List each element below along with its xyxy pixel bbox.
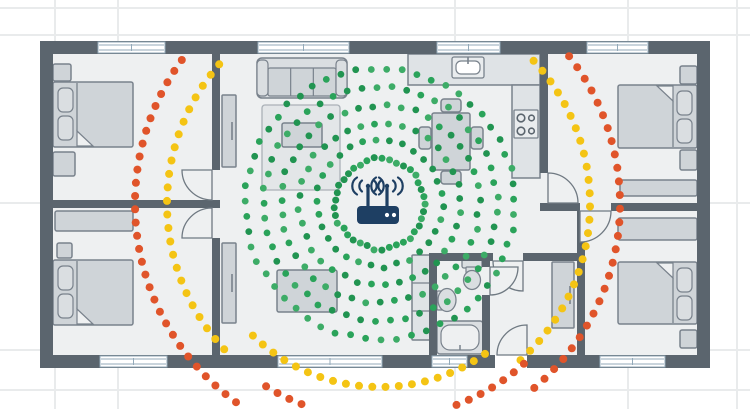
stove [514,110,538,138]
shelf [412,255,430,340]
bed [618,85,697,148]
window [587,42,648,53]
bed [618,262,697,324]
window [258,42,349,53]
furniture-item [680,66,697,84]
router-led [385,213,389,217]
wifi-coverage-floorplan-illustration [0,0,750,409]
furniture-item [432,113,470,170]
furniture-item [680,330,697,348]
wardrobe [222,95,236,167]
furniture-item [55,211,133,231]
tub [437,321,483,354]
furniture-item [53,64,71,81]
sink [452,57,484,78]
sofa [257,58,347,98]
bed [53,82,133,147]
furniture-item [53,152,75,176]
furniture-item [618,218,697,240]
router-led [392,213,396,217]
furniture-item [680,150,697,170]
window [600,356,665,367]
bed [53,260,133,325]
furniture-item [57,243,72,258]
window [437,42,500,53]
floor-plan-canvas [0,0,750,409]
wardrobe [222,243,236,323]
window [100,356,167,367]
window [98,42,165,53]
furniture-item [620,180,697,196]
